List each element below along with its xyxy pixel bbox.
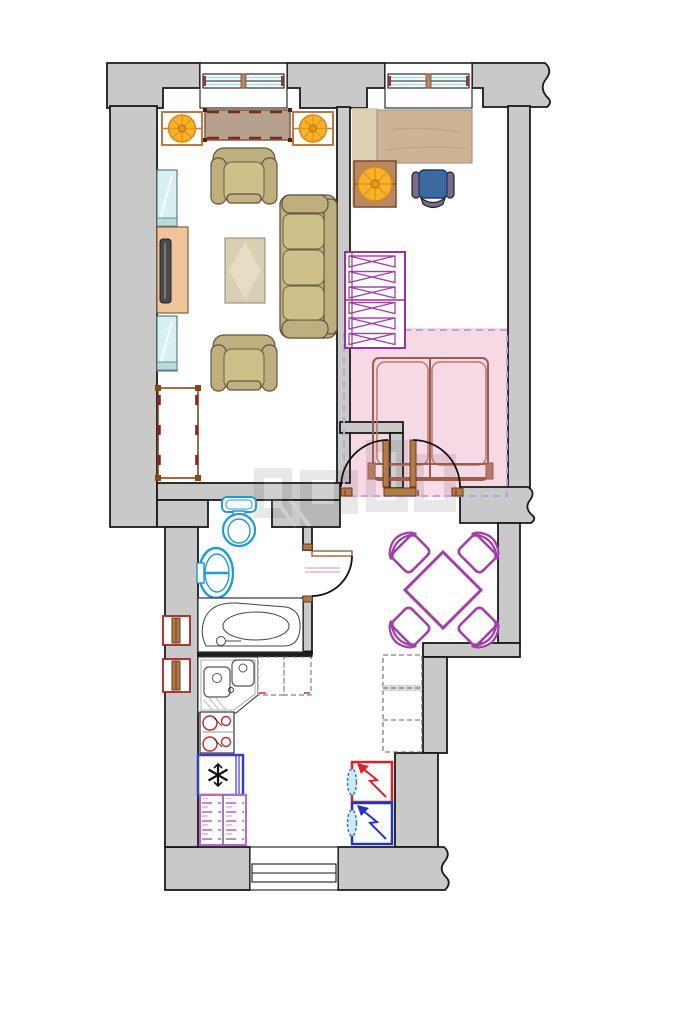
office-chair — [412, 170, 454, 208]
counter-dashed-1 — [258, 657, 284, 695]
wall-left — [110, 106, 157, 527]
wall-dining-right-mid — [423, 657, 447, 753]
electric-heater-blue — [348, 803, 393, 844]
electric-heater-red — [348, 762, 393, 802]
sofa-three-seat — [280, 195, 337, 338]
tv-stand — [157, 227, 188, 313]
wash-basin — [197, 548, 233, 598]
floor-plan-page — [0, 0, 674, 1024]
desk — [377, 110, 472, 163]
corner-bathtub — [198, 598, 303, 652]
armchair-top — [211, 148, 277, 204]
wall-dining-right-lower — [395, 753, 438, 847]
tall-dashed-cabinet — [383, 655, 422, 752]
window-bottom — [250, 847, 338, 890]
glass-cabinet-lower — [157, 316, 177, 371]
wall-vent-lower — [163, 659, 190, 692]
window-top-left — [200, 63, 287, 108]
cooktop-4-burners — [200, 712, 234, 753]
fan-icon — [348, 810, 357, 836]
sideboard — [203, 108, 292, 142]
wall-bedroom-bottom-band — [460, 487, 534, 523]
fan-icon — [348, 769, 357, 795]
wall-top-right-block — [472, 63, 550, 107]
counter-dashed-2 — [284, 657, 311, 695]
decor-wheel-left — [162, 112, 202, 145]
bench-frame — [155, 385, 201, 481]
wall-bottom-left-band — [165, 847, 250, 890]
dining-set — [383, 526, 505, 654]
refrigerator-snowflake — [198, 755, 243, 795]
window-top-right — [385, 63, 472, 108]
side-table-wheel — [354, 161, 396, 207]
hanger-wardrobe — [345, 252, 405, 348]
wall-toilet-niche-left — [157, 500, 208, 527]
window-mullion — [241, 74, 246, 88]
wall-bathroom-right-lower — [303, 597, 312, 654]
floor-plan-canvas — [0, 0, 674, 1024]
window-mullion — [426, 74, 431, 88]
bathroom-door — [303, 544, 352, 602]
glass-cabinet-upper — [157, 170, 177, 226]
wall-window-pier — [287, 63, 385, 108]
wall-bottom-right-block — [338, 847, 449, 890]
corner-sink-unit — [198, 657, 258, 713]
toilet — [222, 497, 256, 546]
wall-vent-upper — [163, 616, 190, 645]
decor-wheel-right — [293, 112, 333, 145]
coffee-table — [225, 238, 265, 303]
wall-top-left-block — [107, 63, 200, 108]
linen-dresser — [200, 795, 246, 845]
wall-bedroom-right — [508, 106, 530, 488]
wall-dining-right-upper — [498, 523, 520, 643]
wall-dining-bottom-band — [423, 643, 520, 657]
wall-closet-top — [340, 422, 403, 433]
armchair-bottom — [211, 335, 277, 391]
